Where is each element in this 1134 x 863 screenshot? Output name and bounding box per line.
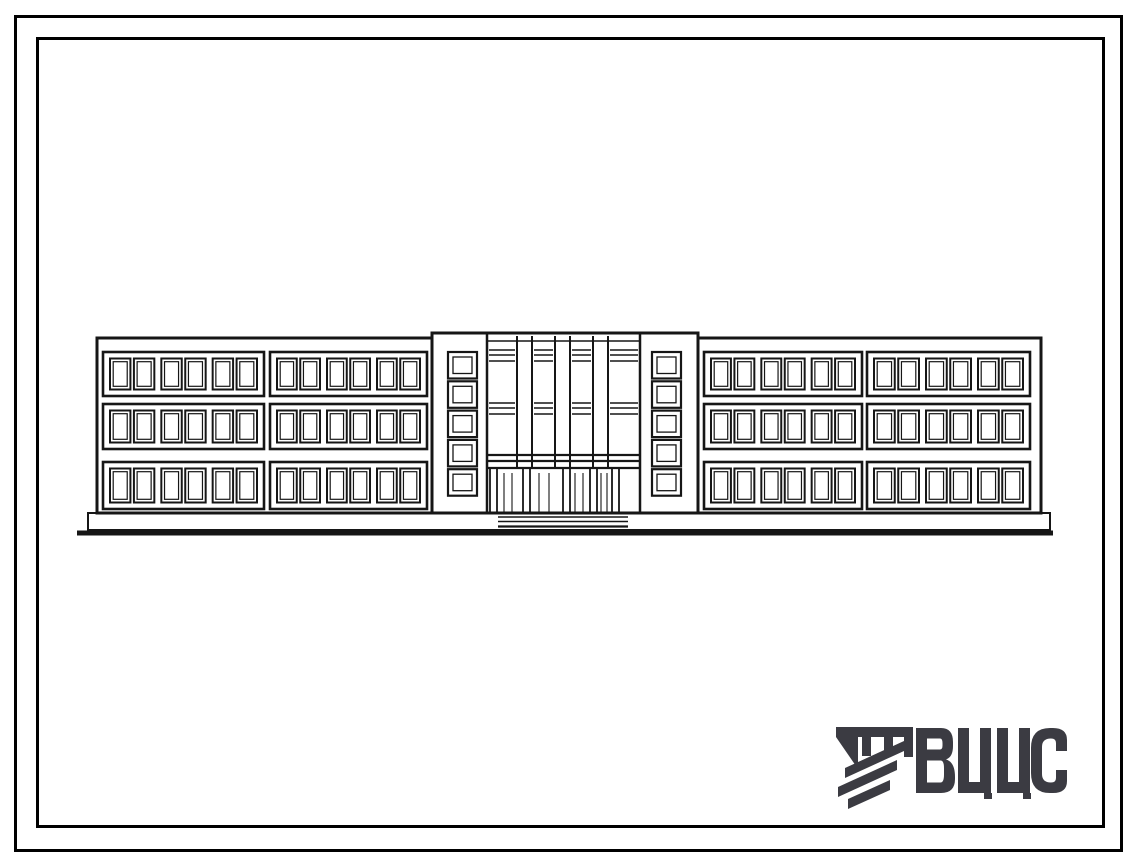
- emblem-stub-icon: [862, 737, 871, 756]
- logo-letter-I: [997, 728, 1031, 799]
- logo-emblem: [836, 727, 913, 809]
- logo-letter-TS: [958, 728, 992, 799]
- emblem-top-beam-icon: [836, 727, 913, 737]
- logo-letters: [916, 728, 1067, 799]
- vcis-logo: [0, 0, 1134, 863]
- logo-letter-V: [916, 728, 955, 793]
- emblem-right-bracket-icon: [904, 737, 913, 757]
- logo-letter-S: [1031, 728, 1067, 793]
